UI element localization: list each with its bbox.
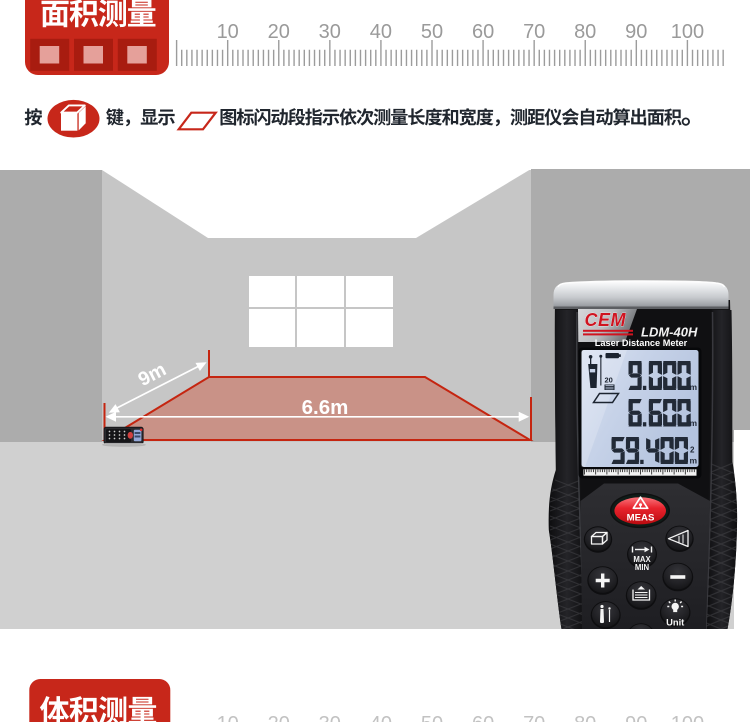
svg-text:10: 10 [217,21,239,43]
svg-text:30: 30 [319,713,341,722]
svg-text:40: 40 [370,21,392,43]
svg-text:m: m [690,418,698,428]
svg-text:m: m [690,382,698,392]
svg-text:MIN: MIN [635,563,650,572]
svg-text:80: 80 [574,21,596,43]
svg-text:20: 20 [268,21,290,43]
svg-text:Unit: Unit [666,617,684,628]
svg-text:2: 2 [690,446,695,455]
svg-text:90: 90 [625,21,647,43]
svg-text:MEAS: MEAS [627,513,655,524]
svg-text:60: 60 [472,21,494,43]
svg-text:10: 10 [217,713,239,722]
svg-text:CEM: CEM [585,310,627,330]
svg-text:20: 20 [268,713,290,722]
svg-text:20: 20 [605,376,613,385]
svg-text:70: 70 [523,713,545,722]
svg-text:40: 40 [370,713,392,722]
svg-text:100: 100 [671,713,704,722]
svg-text:50: 50 [421,713,443,722]
svg-text:m: m [690,456,698,466]
svg-text:Laser Distance Meter: Laser Distance Meter [595,338,688,348]
svg-text:80: 80 [574,713,596,722]
svg-text:60: 60 [472,713,494,722]
svg-text:100: 100 [671,21,704,43]
svg-text:90: 90 [625,713,647,722]
svg-text:50: 50 [421,21,443,43]
svg-text:70: 70 [523,21,545,43]
svg-text:30: 30 [319,21,341,43]
svg-text:6.6m: 6.6m [302,396,349,419]
